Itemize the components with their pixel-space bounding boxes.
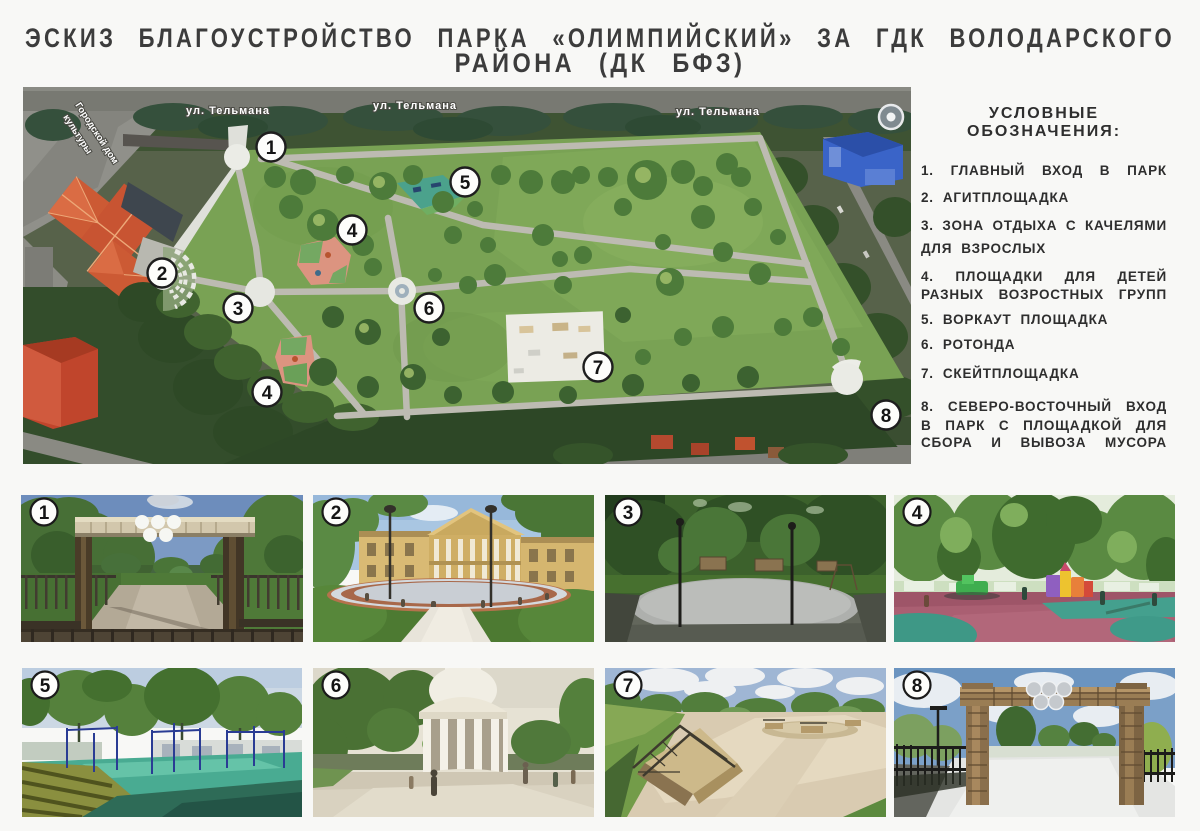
- svg-text:4: 4: [912, 503, 923, 524]
- svg-text:2: 2: [157, 264, 168, 285]
- svg-text:1: 1: [266, 138, 277, 159]
- svg-text:5: 5: [460, 173, 471, 194]
- svg-text:7: 7: [623, 676, 634, 697]
- svg-text:2: 2: [331, 503, 342, 524]
- svg-text:ул. Тельмана: ул. Тельмана: [186, 105, 270, 117]
- svg-text:3: 3: [623, 503, 634, 524]
- svg-text:8: 8: [881, 406, 892, 427]
- svg-text:3: 3: [233, 299, 244, 320]
- svg-text:7: 7: [593, 358, 604, 379]
- svg-text:6: 6: [331, 676, 342, 697]
- svg-text:4: 4: [262, 383, 273, 404]
- svg-text:5: 5: [40, 676, 51, 697]
- svg-text:ул. Тельмана: ул. Тельмана: [373, 100, 457, 112]
- svg-text:8: 8: [912, 676, 923, 697]
- svg-text:1: 1: [39, 503, 50, 524]
- svg-text:6: 6: [424, 299, 435, 320]
- svg-text:ул. Тельмана: ул. Тельмана: [676, 106, 760, 118]
- svg-text:4: 4: [347, 221, 358, 242]
